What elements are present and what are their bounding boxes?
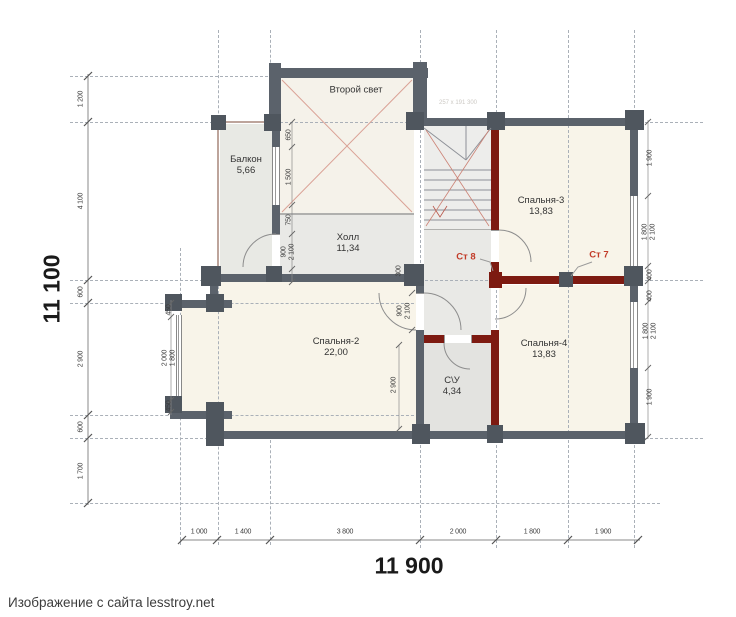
door-opening — [444, 335, 472, 343]
room-name: Спальня-4 — [521, 338, 568, 349]
wall-post — [206, 294, 224, 312]
dim-bottom-1: 1 400 — [235, 529, 252, 536]
wall-segment — [270, 68, 428, 78]
dim-left-1: 4 100 — [78, 193, 85, 210]
room-area: 5,66 — [230, 165, 262, 176]
wall-post — [206, 402, 224, 446]
dim-bottom-2: 3 800 — [337, 529, 354, 536]
wall-segment — [272, 205, 280, 234]
source-caption: Изображение с сайта lesstroy.net — [8, 595, 214, 610]
wall-post — [201, 266, 221, 286]
wall-segment — [630, 122, 638, 196]
room-area: 11,34 — [336, 243, 359, 254]
dim-right-3: 400 — [647, 269, 654, 280]
window — [176, 315, 182, 403]
dim-left-5: 1 700 — [78, 463, 85, 480]
dim-bay-1: 2 000 — [162, 350, 169, 367]
wall-post — [487, 425, 503, 443]
door-opening — [491, 230, 499, 264]
dim-balcony-2: 750 — [286, 214, 293, 225]
grid-line — [568, 30, 569, 548]
wall-segment — [210, 274, 416, 282]
wall-post — [406, 112, 424, 130]
room-fill-corridor — [424, 230, 491, 335]
floor-plan-page: Балкон 5,66 Второй свет Холл 11,34 Спаль… — [0, 0, 736, 617]
wall-segment — [416, 330, 424, 435]
room-area: 13,83 — [521, 349, 568, 360]
window — [630, 302, 638, 368]
dim-right-1: 1 800 — [642, 224, 649, 241]
dim-bottom-0: 1 000 — [191, 529, 208, 536]
wall-post — [624, 266, 643, 286]
hall-boundary-line — [280, 213, 414, 215]
dim-right-4: 400 — [647, 290, 654, 301]
room-label-balcony: Балкон 5,66 — [230, 154, 262, 176]
dim-left-2: 600 — [78, 286, 85, 297]
room-name: Спальня-2 — [313, 336, 360, 347]
window — [630, 196, 638, 266]
wall-post — [211, 115, 226, 130]
grid-line — [70, 303, 424, 304]
dim-balcony-0: 650 — [286, 129, 293, 140]
dim-bay-0: 450 — [166, 304, 173, 315]
grid-line — [70, 503, 660, 504]
wall-post — [487, 112, 505, 130]
dim-right-0: 1 900 — [647, 150, 654, 167]
wall-tag-st7: Ст 7 — [589, 250, 608, 261]
wall-post — [404, 264, 424, 286]
dim-balcony-1: 1 500 — [286, 169, 293, 186]
dim-bay-2: 1 800 — [170, 350, 177, 367]
grid-line — [70, 415, 424, 416]
dim-balcony-3: 900 — [281, 246, 288, 257]
dim-bay-3: 450 — [166, 400, 173, 411]
stair-boundary-line — [424, 229, 491, 230]
grid-line — [70, 76, 268, 77]
room-fill-balcony — [220, 124, 276, 274]
room-fill-stairs — [424, 126, 491, 230]
room-area: 22,00 — [313, 347, 360, 358]
dim-right-5: 1 800 — [643, 323, 650, 340]
dim-right-2: 2 100 — [650, 224, 657, 241]
wall-post — [559, 272, 573, 287]
dim-bottom-4: 1 800 — [524, 529, 541, 536]
room-name: Второй свет — [329, 84, 382, 95]
dim-door-width: 900 — [397, 305, 404, 316]
window — [272, 147, 280, 205]
wall-post — [625, 423, 645, 444]
red-wall-segment — [424, 335, 444, 343]
red-wall-segment — [470, 335, 491, 343]
dim-right-6: 2 100 — [651, 323, 658, 340]
grid-line — [218, 30, 219, 545]
wall-tag-st8: Ст 8 — [456, 252, 475, 263]
room-name: С\У — [443, 375, 462, 386]
wall-post — [412, 424, 430, 444]
grid-line — [270, 440, 271, 545]
room-name: Спальня-3 — [518, 195, 565, 206]
dim-bottom-3: 2 000 — [450, 529, 467, 536]
balcony-rail — [217, 122, 219, 276]
room-label-second-light: Второй свет — [329, 84, 382, 95]
room-label-su: С\У 4,34 — [443, 375, 462, 397]
room-fill-second-light — [280, 78, 414, 214]
dim-door-jamb: 300 — [396, 265, 403, 276]
dim-su-wall: 2 900 — [391, 377, 398, 394]
wall-post — [266, 266, 282, 282]
room-area: 4,34 — [443, 386, 462, 397]
wall-segment — [415, 118, 641, 126]
room-fill-bay — [181, 308, 218, 411]
grid-line — [496, 30, 497, 548]
dim-balcony-4: 2 100 — [289, 244, 296, 261]
dim-total-bottom: 11 900 — [374, 553, 443, 580]
red-wall-segment — [491, 126, 499, 230]
dim-right-7: 1 900 — [647, 389, 654, 406]
red-wall-post — [489, 272, 502, 288]
room-area: 13,83 — [518, 206, 565, 217]
dim-left-0: 1 200 — [78, 91, 85, 108]
room-name: Холл — [336, 232, 359, 243]
dim-door-height: 2 100 — [405, 303, 412, 320]
room-name: Балкон — [230, 154, 262, 165]
wall-post — [264, 114, 281, 131]
room-label-bedroom3: Спальня-3 13,83 — [518, 195, 565, 217]
red-wall-segment — [491, 330, 499, 431]
room-label-hall: Холл 11,34 — [336, 232, 359, 254]
stair-note: 257 x 191 300 — [439, 100, 477, 106]
room-label-bedroom2: Спальня-2 22,00 — [313, 336, 360, 358]
dim-left-4: 600 — [78, 421, 85, 432]
wall-post — [625, 110, 644, 130]
door-opening — [416, 293, 424, 332]
room-label-bedroom4: Спальня-4 13,83 — [521, 338, 568, 360]
dim-total-left: 11 100 — [39, 254, 66, 323]
dim-bottom-5: 1 900 — [595, 529, 612, 536]
dim-left-3: 2 900 — [78, 351, 85, 368]
